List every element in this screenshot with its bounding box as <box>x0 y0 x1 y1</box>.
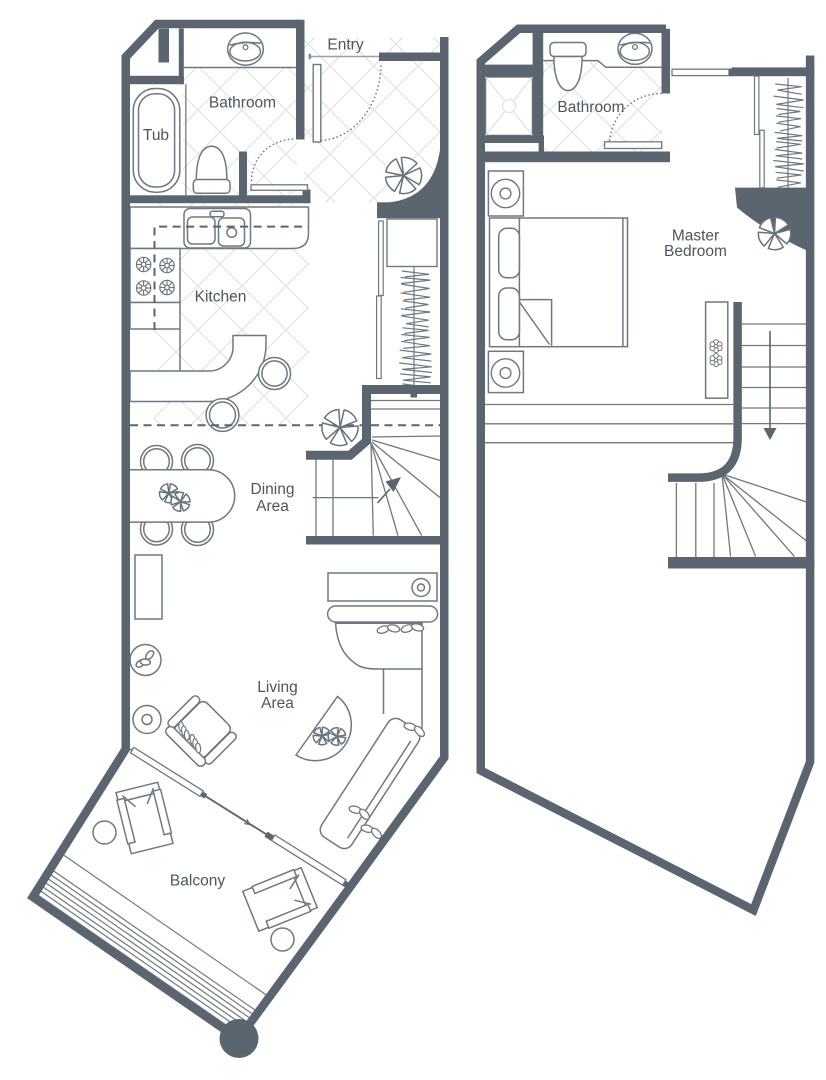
svg-text:Area: Area <box>256 498 289 515</box>
svg-text:Dining: Dining <box>251 481 295 498</box>
svg-text:Bedroom: Bedroom <box>664 243 727 260</box>
svg-text:Entry: Entry <box>327 37 363 54</box>
svg-text:Master: Master <box>672 228 719 245</box>
svg-text:Living: Living <box>257 679 298 696</box>
svg-text:Bathroom: Bathroom <box>209 95 276 112</box>
svg-text:Bathroom: Bathroom <box>557 99 624 116</box>
svg-text:Area: Area <box>261 695 294 712</box>
svg-text:Tub: Tub <box>143 127 169 144</box>
svg-text:Kitchen: Kitchen <box>195 289 247 306</box>
svg-text:Balcony: Balcony <box>170 873 225 890</box>
